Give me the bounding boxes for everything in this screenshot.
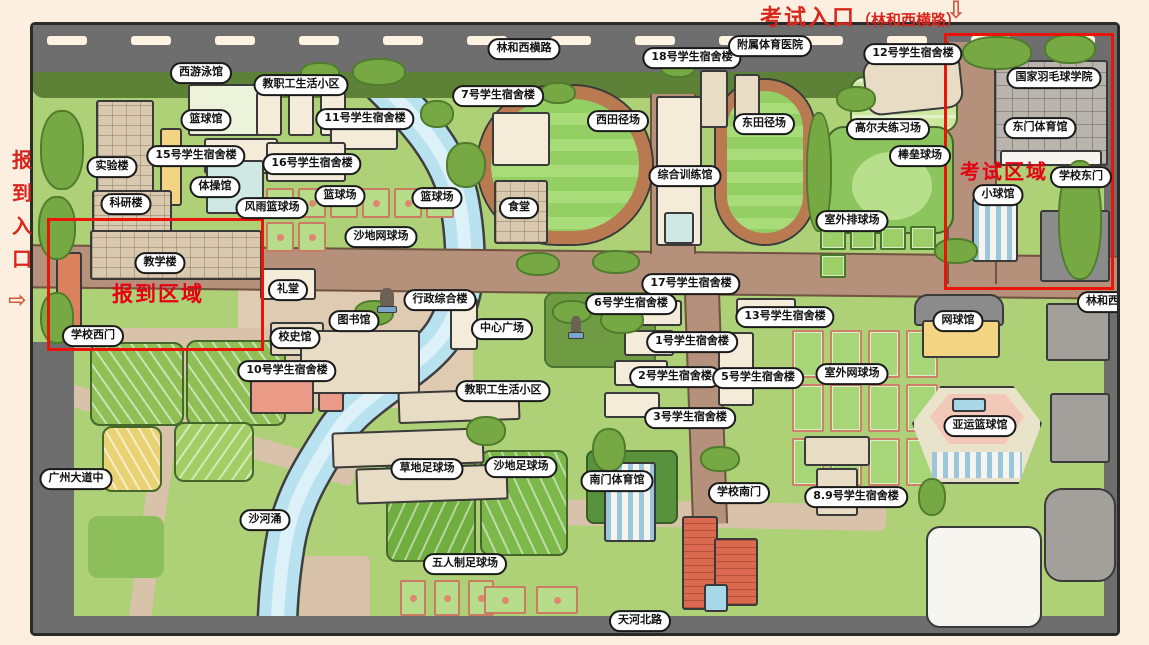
tree: [40, 110, 84, 190]
map-label: 棒垒球场: [889, 145, 951, 167]
statue-base: [568, 332, 584, 339]
court: [400, 580, 426, 616]
map-label: 广州大道中: [40, 468, 113, 490]
court: [868, 438, 900, 486]
map-label: 天河北路: [609, 610, 671, 632]
gray-building: [1050, 393, 1110, 463]
court: [266, 222, 294, 252]
map-label: 国家羽毛球学院: [1007, 67, 1102, 89]
map-label: 学校南门: [708, 482, 770, 504]
map-label: 教职工生活小区: [456, 380, 551, 402]
map-label: 五人制足球场: [423, 553, 507, 575]
court: [536, 586, 578, 614]
map-label: 2号学生宿舍楼: [629, 366, 721, 388]
report-entrance-arrow-icon: ⇨: [8, 288, 26, 313]
court: [484, 586, 526, 614]
map-label: 沙河涌: [240, 509, 291, 531]
training-hall-glass: [664, 212, 694, 244]
court: [868, 384, 900, 432]
south-courts-horizontal: [484, 586, 580, 614]
report-entrance-char: 到: [12, 183, 32, 203]
map-label: 林和西路: [1077, 291, 1120, 313]
map-canvas: 林和西横路西游泳馆教职工生活小区篮球馆11号学生宿舍楼15号学生宿舍楼16号学生…: [30, 22, 1120, 636]
map-label: 西田径场: [587, 110, 649, 132]
map-label: 6号学生宿舍楼: [585, 293, 677, 315]
tree: [836, 86, 876, 112]
statue-icon: [380, 288, 394, 308]
south-gate-glass: [704, 584, 728, 612]
dorm-8-9: [804, 436, 870, 466]
tree: [420, 100, 454, 128]
east-athletics-track: [716, 80, 814, 244]
exam-area-label: 考试区域: [960, 156, 1048, 185]
report-entrance-char: 报: [12, 150, 32, 170]
exam-entrance-title: 考试入口: [760, 0, 856, 32]
dorm-10: [250, 380, 314, 414]
map-label: 室外排球场: [816, 210, 889, 232]
map-label: 教职工生活小区: [254, 74, 349, 96]
map-label: 17号学生宿舍楼: [641, 273, 740, 295]
map-label: 东田径场: [733, 113, 795, 135]
hall-glass: [932, 452, 1022, 478]
staff-housing: [288, 92, 314, 136]
staff-housing: [256, 92, 282, 136]
map-label: 行政综合楼: [404, 289, 477, 311]
dorm-10: [318, 392, 344, 412]
map-label: 篮球场: [315, 185, 366, 207]
map-label: 篮球场: [412, 187, 463, 209]
map-label: 12号学生宿舍楼: [863, 43, 962, 65]
map-label: 学校东门: [1050, 166, 1112, 188]
gray-building: [1044, 488, 1116, 582]
court: [820, 254, 846, 278]
court: [792, 384, 824, 432]
map-label: 网球馆: [933, 310, 984, 332]
map-label: 东门体育馆: [1004, 117, 1077, 139]
tree: [918, 478, 946, 516]
court: [434, 580, 460, 616]
map-label: 中心广场: [471, 318, 533, 340]
tree: [466, 416, 506, 446]
tree: [592, 428, 626, 472]
report-entrance-char: 口: [12, 249, 32, 269]
road-lane-mark: [383, 36, 423, 45]
map-label: 5号学生宿舍楼: [712, 367, 804, 389]
tree: [700, 446, 740, 472]
court: [362, 188, 390, 218]
hall-roof-box: [952, 398, 986, 412]
exam-entrance-arrow-icon: ⇩: [946, 0, 966, 24]
road-lane-mark: [47, 36, 87, 45]
map-label: 食堂: [499, 197, 539, 219]
map-label: 科研楼: [101, 193, 152, 215]
map-label: 高尔夫练习场: [846, 118, 930, 140]
report-entrance-char: 入: [12, 216, 32, 236]
map-label: 7号学生宿舍楼: [452, 85, 544, 107]
map-label: 教学楼: [135, 252, 186, 274]
map-label: 沙地足球场: [485, 456, 558, 478]
lab-building: [96, 100, 154, 198]
tree: [516, 252, 560, 276]
map-frame: 林和西横路西游泳馆教职工生活小区篮球馆11号学生宿舍楼15号学生宿舍楼16号学生…: [30, 22, 1120, 636]
map-label: 13号学生宿舍楼: [735, 306, 834, 328]
campus-map: 林和西横路西游泳馆教职工生活小区篮球馆11号学生宿舍楼15号学生宿舍楼16号学生…: [0, 0, 1149, 645]
road-lane-mark: [299, 36, 339, 45]
map-label: 礼堂: [268, 279, 308, 301]
map-label: 1号学生宿舍楼: [646, 331, 738, 353]
map-label: 室外网球场: [816, 363, 889, 385]
dorm-18: [700, 70, 728, 128]
map-label: 西游泳馆: [170, 62, 232, 84]
map-label: 综合训练馆: [649, 165, 722, 187]
report-area-label: 报到区域: [112, 278, 204, 308]
dorm-7: [492, 112, 550, 166]
tree: [352, 58, 406, 86]
road-lane-mark: [131, 36, 171, 45]
map-label: 林和西横路: [488, 38, 561, 60]
tree: [592, 250, 640, 274]
map-label: 3号学生宿舍楼: [644, 407, 736, 429]
map-label: 实验楼: [87, 156, 138, 178]
map-label: 16号学生宿舍楼: [262, 153, 361, 175]
map-label: 11号学生宿舍楼: [315, 108, 414, 130]
map-label: 15号学生宿舍楼: [146, 145, 245, 167]
map-label: 南门体育馆: [581, 470, 654, 492]
report-entrance-annotation: 报到入口: [12, 150, 32, 269]
map-label: 18号学生宿舍楼: [642, 47, 741, 69]
map-label: 沙地网球场: [345, 226, 418, 248]
road-lane-mark: [215, 36, 255, 45]
court: [910, 226, 936, 250]
map-label: 风雨篮球场: [236, 197, 309, 219]
map-label: 草地足球场: [391, 458, 464, 480]
court: [830, 384, 862, 432]
map-label: 小球馆: [973, 184, 1024, 206]
court: [298, 222, 326, 252]
white-building-se: [926, 526, 1042, 628]
statue-base: [377, 306, 397, 313]
map-label: 体操馆: [190, 176, 241, 198]
road-lane-mark: [635, 36, 675, 45]
map-label: 10号学生宿舍楼: [237, 360, 336, 382]
tree: [446, 142, 486, 188]
exam-entrance-annotation: 考试入口 （林和西横路）: [760, 0, 961, 32]
map-label: 篮球馆: [181, 109, 232, 131]
map-label: 图书馆: [329, 310, 380, 332]
map-label: 学校西门: [62, 325, 124, 347]
map-label: 8.9号学生宿舍楼: [804, 486, 908, 508]
tree: [540, 82, 576, 104]
map-label: 附属体育医院: [728, 35, 812, 57]
map-label: 校史馆: [270, 327, 321, 349]
map-label: 亚运篮球馆: [944, 415, 1017, 437]
